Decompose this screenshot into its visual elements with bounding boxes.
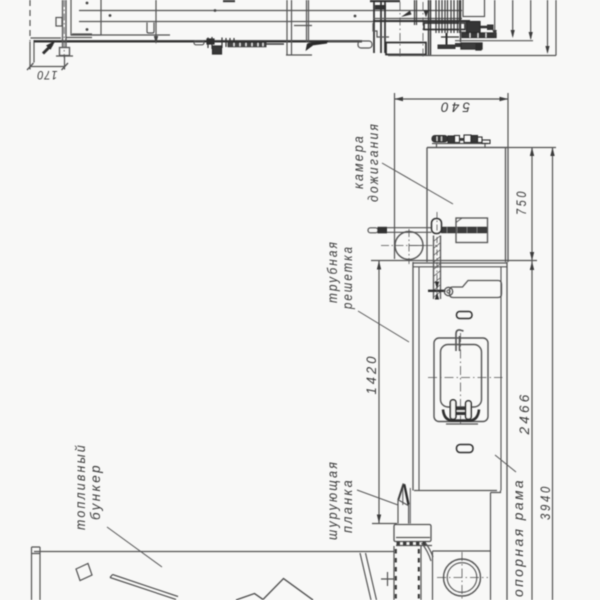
svg-text:1420: 1420 bbox=[364, 354, 379, 395]
svg-text:топливный: топливный bbox=[73, 443, 88, 530]
svg-text:камера: камера bbox=[351, 134, 366, 189]
svg-text:3940: 3940 bbox=[538, 484, 553, 520]
svg-text:2466: 2466 bbox=[517, 392, 532, 436]
svg-text:бункер: бункер bbox=[88, 463, 103, 520]
svg-text:750: 750 bbox=[514, 189, 529, 215]
svg-text:опорная рама: опорная рама bbox=[511, 478, 526, 597]
svg-text:решетка: решетка bbox=[340, 245, 355, 310]
svg-text:шурующая: шурующая bbox=[325, 460, 340, 540]
svg-text:540: 540 bbox=[438, 100, 470, 115]
svg-text:дожигания: дожигания bbox=[366, 122, 381, 202]
svg-text:планка: планка bbox=[340, 478, 355, 533]
svg-text:трубная: трубная bbox=[325, 240, 340, 303]
svg-text:170: 170 bbox=[37, 68, 58, 82]
